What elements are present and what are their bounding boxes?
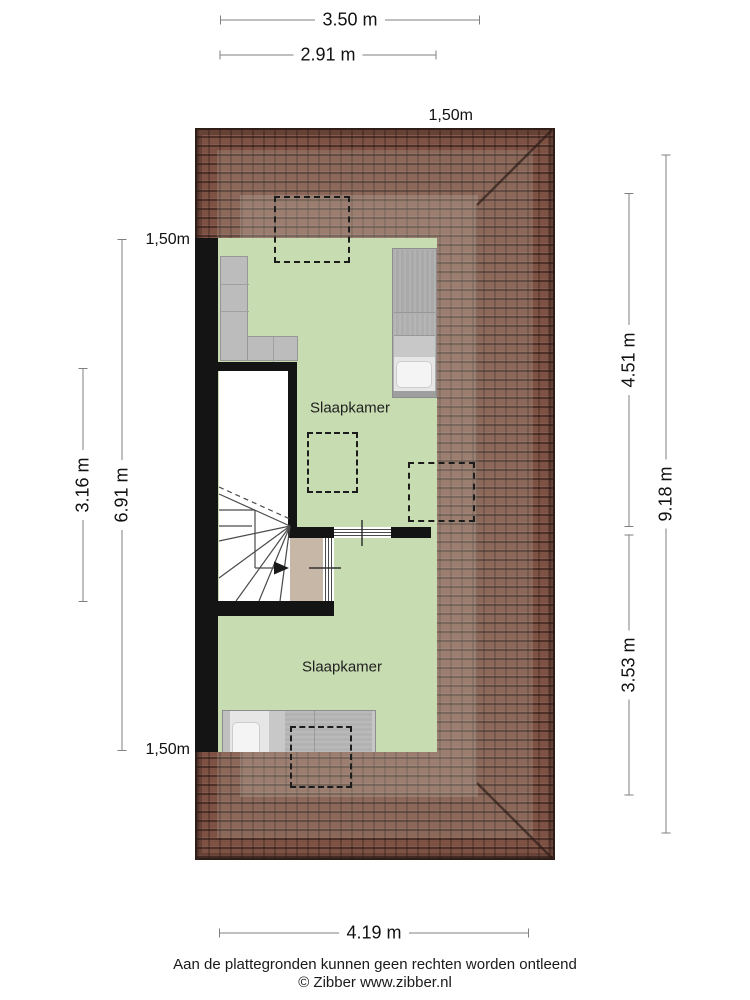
dim-tick xyxy=(79,601,88,602)
dim-tick xyxy=(625,193,634,194)
cabinet-seam xyxy=(221,311,249,312)
headroom-label-left-lower: 1,50m xyxy=(138,741,190,759)
dim-line xyxy=(83,369,84,450)
dim-tick xyxy=(662,833,671,834)
dimension-label: 3.16 m xyxy=(73,450,94,519)
wall-stairwell-right xyxy=(288,362,297,527)
bed-headboard xyxy=(223,711,230,752)
cabinet-seam xyxy=(273,337,274,362)
dimension-bottom: 4.19 m xyxy=(219,923,529,944)
dimension-label: 2.91 m xyxy=(293,45,362,66)
bed-footboard xyxy=(393,391,436,397)
door-opening-landing xyxy=(323,538,334,601)
room-label-upper: Slaapkamer xyxy=(310,400,390,417)
dim-line xyxy=(409,933,528,934)
dim-tick xyxy=(118,750,127,751)
dimension-right-lower: 3.53 m xyxy=(619,535,640,796)
dim-line xyxy=(122,530,123,750)
stair-landing xyxy=(290,538,323,601)
roof-window-outline-center xyxy=(307,432,358,493)
corner-cabinet xyxy=(220,256,298,361)
dimension-top-inner: 2.91 m xyxy=(220,45,437,66)
dimension-top-outer: 3.50 m xyxy=(220,10,480,31)
dim-tick xyxy=(436,51,437,60)
headroom-label-top: 1,50m xyxy=(400,107,473,125)
dimension-label: 9.18 m xyxy=(656,459,677,528)
dim-line xyxy=(629,536,630,631)
dim-line xyxy=(363,55,436,56)
bed-duvet-fold xyxy=(394,314,435,336)
dimension-label: 3.50 m xyxy=(315,10,384,31)
dim-line xyxy=(385,20,479,21)
dim-line xyxy=(221,55,294,56)
dim-tick xyxy=(625,526,634,527)
dim-line xyxy=(83,520,84,601)
dim-tick xyxy=(625,535,634,536)
bed-pillow xyxy=(232,722,260,752)
bed-pillow xyxy=(396,361,432,388)
dimension-left-outer: 6.91 m xyxy=(112,239,133,751)
cabinet-horizontal-leg xyxy=(247,336,298,361)
cabinet-vertical-leg xyxy=(220,256,248,361)
bed-sheet-band xyxy=(394,336,435,357)
dimension-left-inner: 3.16 m xyxy=(73,368,94,602)
dimension-label: 6.91 m xyxy=(112,460,133,529)
dim-line xyxy=(666,156,667,460)
dormer-outline-top xyxy=(274,196,350,263)
door-opening-middle-wall xyxy=(334,527,391,538)
dim-line xyxy=(629,395,630,526)
dim-tick xyxy=(625,795,634,796)
cabinet-seam xyxy=(221,284,249,285)
wall-middle-left-segment xyxy=(288,527,334,538)
dormer-outline-right xyxy=(408,462,475,522)
dormer-outline-bottom xyxy=(290,726,352,788)
dimension-right-upper: 4.51 m xyxy=(619,193,640,527)
wall-stairwell-top xyxy=(195,362,297,371)
dim-line xyxy=(629,700,630,795)
dim-tick xyxy=(479,16,480,25)
dimension-label: 3.53 m xyxy=(619,630,640,699)
dim-tick xyxy=(118,239,127,240)
dim-tick xyxy=(662,155,671,156)
dim-line xyxy=(122,240,123,460)
wall-middle-right-segment xyxy=(391,527,431,538)
bed-footboard xyxy=(372,711,376,752)
dimension-label: 4.19 m xyxy=(339,923,408,944)
dim-tick xyxy=(79,368,88,369)
dim-line xyxy=(666,529,667,833)
room-label-lower: Slaapkamer xyxy=(302,659,382,676)
dim-line xyxy=(220,933,339,934)
dim-line xyxy=(629,194,630,325)
dimension-right-total: 9.18 m xyxy=(656,155,677,834)
bed-upper-room xyxy=(392,248,437,398)
dimension-label: 4.51 m xyxy=(619,325,640,394)
wall-stairwell-bottom xyxy=(195,601,334,616)
disclaimer-text: Aan de plattegronden kunnen geen rechten… xyxy=(0,956,750,973)
dim-line xyxy=(221,20,315,21)
bed-sheet-band xyxy=(269,711,285,752)
dim-tick xyxy=(528,929,529,938)
wall-left xyxy=(195,238,218,752)
headroom-label-left-upper: 1,50m xyxy=(138,231,190,249)
stairwell xyxy=(219,371,290,601)
copyright-text: © Zibber www.zibber.nl xyxy=(0,974,750,991)
bed-duvet xyxy=(394,250,435,313)
floorplan-page: { "plan_type": "attic-floor-plan", "room… xyxy=(0,0,750,1000)
